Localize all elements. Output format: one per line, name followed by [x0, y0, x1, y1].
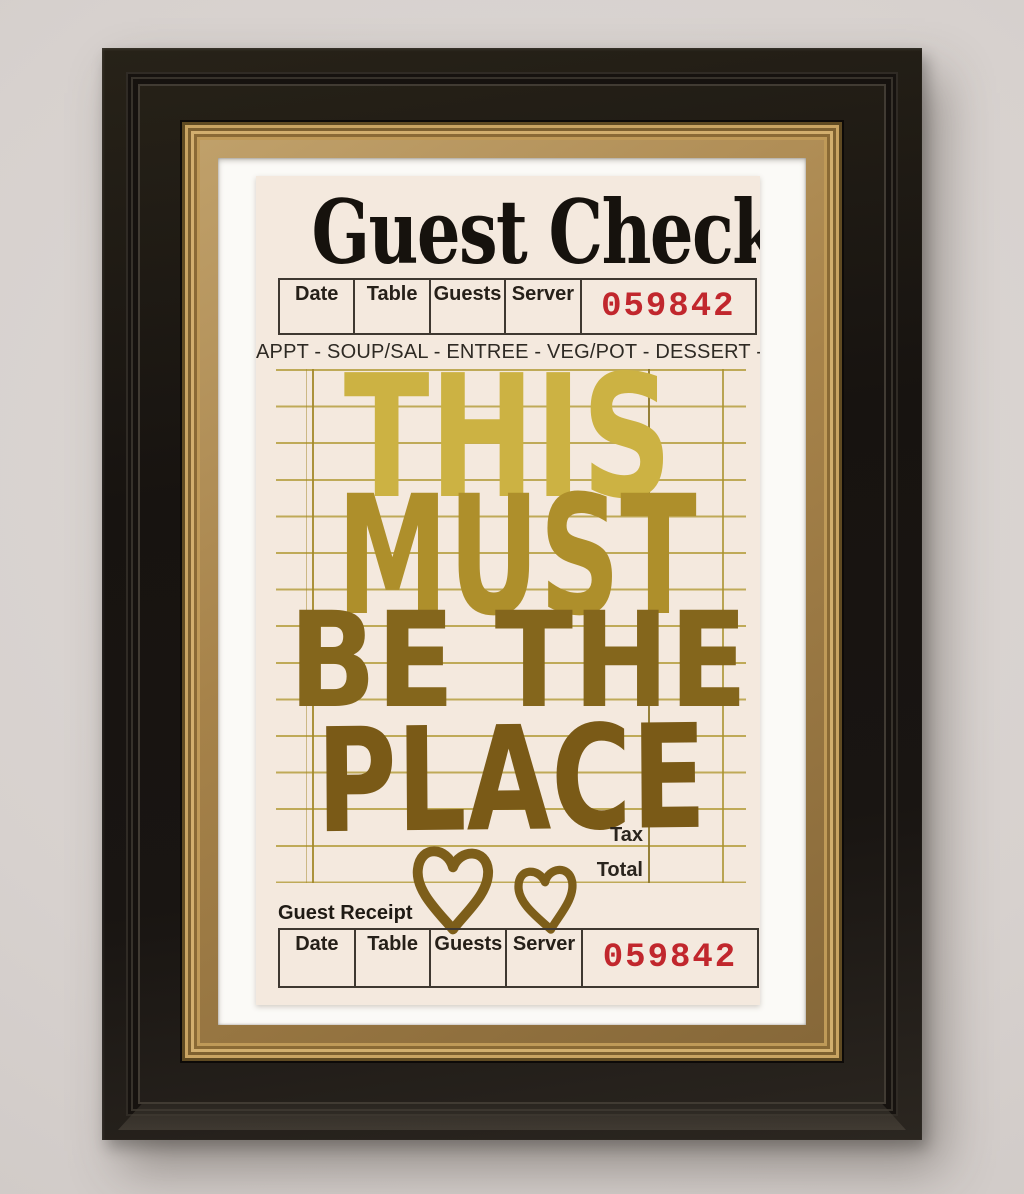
receipt-cell-date: Date [280, 930, 356, 986]
frame-bottom-bevel [118, 1104, 906, 1130]
heart-icon [408, 838, 498, 938]
receipt-cell-guests: Guests [431, 930, 507, 986]
frame-gold-trim: Guest Check Date Table Guests Server 059… [182, 122, 842, 1061]
header-cell-table: Table [355, 280, 430, 333]
check-number-bottom: 059842 [583, 930, 757, 986]
tax-label: Tax [610, 824, 643, 847]
mat-board: Guest Check Date Table Guests Server 059… [218, 158, 806, 1025]
wall-background: Guest Check Date Table Guests Server 059… [0, 0, 1024, 1194]
total-label: Total [597, 859, 643, 882]
check-number-top: 059842 [582, 280, 755, 333]
guest-receipt-label: Guest Receipt [278, 902, 412, 925]
header-cell-server: Server [506, 280, 581, 333]
guest-check-title: Guest Check [311, 188, 704, 276]
receipt-cell-table: Table [356, 930, 432, 986]
order-info-table: Date Table Guests Server 059842 [278, 278, 757, 335]
guest-check-print: Guest Check Date Table Guests Server 059… [256, 176, 760, 1005]
header-cell-guests: Guests [431, 280, 506, 333]
header-cell-date: Date [280, 280, 355, 333]
receipt-cell-server: Server [507, 930, 583, 986]
receipt-info-table: Date Table Guests Server 059842 [278, 928, 759, 988]
picture-frame: Guest Check Date Table Guests Server 059… [102, 48, 922, 1140]
